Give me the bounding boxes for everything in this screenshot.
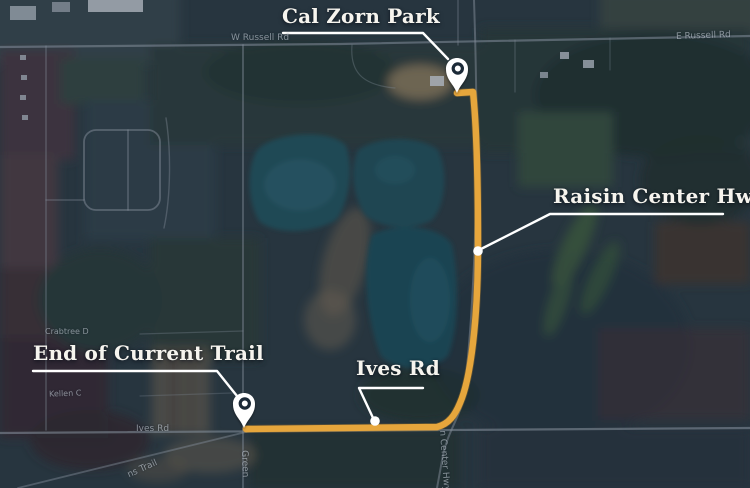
ives-rd-dot-icon xyxy=(370,416,380,426)
street-label-crabtree: Crabtree D xyxy=(45,327,89,336)
street-label-green-road: Green xyxy=(239,450,250,478)
dark-tint-overlay xyxy=(0,0,750,488)
callout-cal-zorn-park: Cal Zorn Park xyxy=(282,4,440,28)
street-label-w-russell-rd: W Russell Rd xyxy=(231,33,289,43)
callout-raisin-center-hwy: Raisin Center Hwy xyxy=(553,184,750,208)
callout-end-of-current-trail: End of Current Trail xyxy=(33,341,264,365)
raisin-center-hwy-dot-icon xyxy=(473,246,483,256)
street-label-kellen: Kellen C xyxy=(49,388,82,398)
street-label-e-russell-rd: E Russell Rd xyxy=(676,30,731,42)
route-map: W Russell Rd E Russell Rd Ives Rd ns Tra… xyxy=(0,0,750,488)
callout-ives-rd: Ives Rd xyxy=(356,356,440,380)
street-label-ives-rd: Ives Rd xyxy=(136,424,169,434)
map-canvas xyxy=(0,0,750,488)
